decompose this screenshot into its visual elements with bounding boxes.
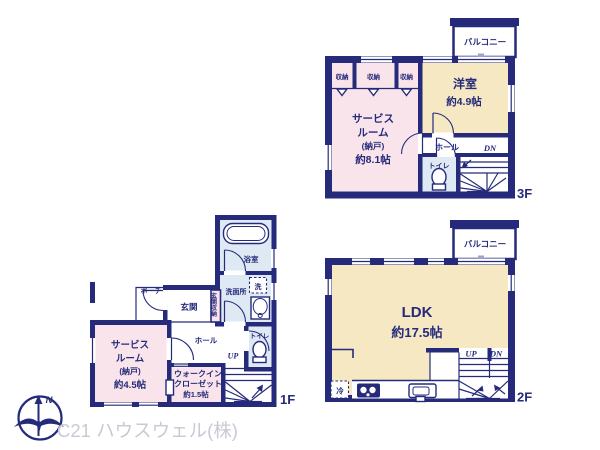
ldk-name: LDK bbox=[402, 304, 433, 321]
service-room-3f-size: 約8.1帖 bbox=[355, 153, 391, 166]
floor-label-3f: 3F bbox=[517, 186, 532, 201]
closet-label-3: 収納 bbox=[400, 72, 414, 81]
service-room-3f-line1: サービス bbox=[352, 112, 394, 125]
floor-label-1f: 1F bbox=[280, 392, 295, 407]
hall-label-3f: ホール bbox=[435, 143, 459, 152]
toilet-icon-3f bbox=[432, 169, 446, 191]
floor-label-2f: 2F bbox=[517, 390, 532, 405]
balcony-3f: バルコニー bbox=[450, 18, 519, 57]
closet-label-1: 収納 bbox=[336, 72, 350, 81]
closet-label-2: 収納 bbox=[367, 72, 381, 81]
washer-label: 洗 bbox=[255, 282, 262, 291]
service-room-1f-line2: ルーム bbox=[116, 354, 145, 365]
bath-label: 浴室 bbox=[244, 254, 259, 264]
stove-icon bbox=[357, 384, 380, 398]
entrance-label: 玄関 bbox=[180, 302, 197, 312]
wic-line2: クローゼット bbox=[174, 379, 222, 389]
floor-2f: バルコニー bbox=[325, 220, 532, 405]
floor-1f: 洗 bbox=[90, 215, 296, 408]
dn-label-3f: DN bbox=[483, 143, 497, 153]
toilet-label-1f: トイレ bbox=[250, 332, 270, 340]
porch-label: ポーチ bbox=[141, 286, 162, 295]
dn-label-2f: DN bbox=[489, 349, 503, 359]
floor-3f: バルコニー bbox=[325, 18, 532, 201]
up-label-1f: UP bbox=[228, 352, 239, 361]
service-room-1f-line1: サービス bbox=[111, 339, 149, 351]
fridge-label: 冷 bbox=[336, 386, 344, 396]
western-room-size: 約4.9帖 bbox=[446, 95, 482, 108]
western-room-name: 洋室 bbox=[453, 76, 477, 91]
floorplan-svg: バルコニー bbox=[0, 0, 600, 450]
ldk-size: 約17.5帖 bbox=[391, 325, 442, 340]
fridge-space: 冷 bbox=[331, 381, 349, 398]
wic-size: 約1.5帖 bbox=[183, 389, 209, 399]
company-watermark: C21 ハウスウェル(株) bbox=[57, 420, 238, 441]
door-arc-service-1f bbox=[172, 338, 194, 360]
balcony-2f: バルコニー bbox=[450, 220, 519, 259]
hall-label-1f: ホール bbox=[195, 336, 218, 345]
service-room-1f-line3: (納戸) bbox=[119, 366, 141, 376]
entrance-storage-label: 玄関収納 bbox=[210, 292, 217, 318]
pipe-space bbox=[166, 380, 174, 395]
vanity-sink-icon bbox=[251, 297, 270, 319]
wic-line1: ウォークイン bbox=[174, 369, 222, 379]
balcony-label: バルコニー bbox=[464, 37, 506, 47]
balcony-label: バルコニー bbox=[464, 239, 506, 249]
compass-north-label: N bbox=[46, 395, 54, 406]
floorplan-image: バルコニー bbox=[0, 0, 600, 450]
bathtub-icon bbox=[224, 224, 269, 244]
service-room-3f-line2: ルーム bbox=[357, 127, 389, 139]
up-label-2f: UP bbox=[465, 349, 477, 359]
washroom-label: 洗面所 bbox=[226, 287, 247, 296]
service-room-1f-size: 約4.5帖 bbox=[114, 379, 147, 391]
washer-space: 洗 bbox=[250, 278, 267, 294]
toilet-icon-1f bbox=[253, 342, 266, 363]
stairs-1f bbox=[226, 369, 272, 402]
toilet-label-3f: トイレ bbox=[429, 162, 450, 170]
service-room-3f-line3: (納戸) bbox=[362, 141, 385, 151]
